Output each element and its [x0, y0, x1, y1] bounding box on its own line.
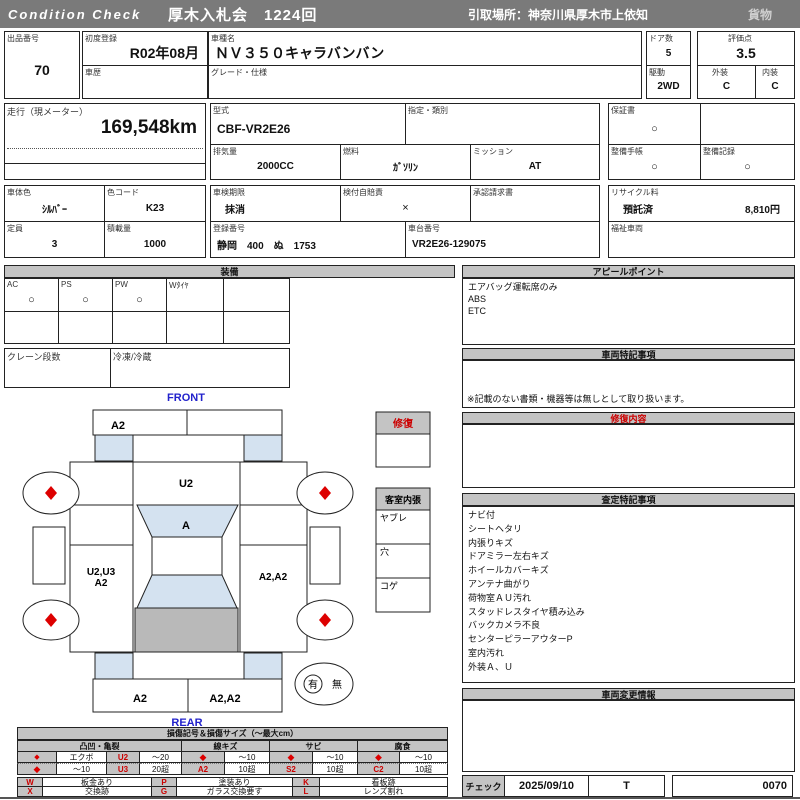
history-cell: 車歴: [82, 65, 208, 99]
diamond-icon: ◆: [270, 752, 313, 763]
repair-mini-box-title: 修復: [392, 417, 414, 430]
vehicle-damage-diagram: FRONT REAR A2 U2 A U2,U3 A2 A2,A2: [0, 388, 460, 728]
legend-cell: 10超: [313, 763, 358, 775]
legend-data-row-1: ◆ エクボ U2 〜20 ◆ 〜10 ◆ 〜10 ◆ 〜10: [17, 752, 448, 763]
equipment-pw-mark: ○: [113, 288, 166, 311]
doors-value: 5: [647, 41, 690, 65]
legend-code-a2: A2: [182, 763, 225, 775]
assessment-item: シートヘタリ: [468, 523, 789, 537]
drive-cell: 駆動 2WD: [646, 65, 691, 99]
vehicle-notes-disclaimer: ※記載のない書類・機器等は無しとして取り扱います。: [467, 393, 790, 405]
check-inspector: T: [623, 780, 630, 792]
code-row-1: W 板金あり P 塗装あり K 看板跡: [17, 777, 448, 787]
equipment-wtire-cell: Wﾀｲﾔ: [166, 278, 224, 312]
inspection-value: 抹消: [211, 195, 340, 221]
code-w: W: [17, 777, 43, 787]
cabin-interior-row-tear: ヤブレ: [380, 512, 407, 523]
code-x-desc: 交換跡: [43, 787, 152, 797]
diamond-icon: ◆: [182, 752, 225, 763]
code-k: K: [293, 777, 320, 787]
score-value: 3.5: [698, 41, 794, 65]
code-g-desc: ガラス交換要す: [177, 787, 293, 797]
interior-grade-cell: 内装 C: [755, 65, 795, 99]
legend-cell: 〜20: [140, 752, 182, 763]
equipment-empty-cell: [166, 311, 224, 344]
equipment-wtire-mark: [167, 288, 223, 311]
reefer-value: [111, 358, 289, 387]
vehicle-notes-section-header: 車両特記事項: [462, 348, 795, 360]
equipment-title: 装備: [220, 265, 238, 278]
legend-group-dent: 凸凹・亀裂: [17, 740, 182, 752]
front-label: FRONT: [167, 392, 205, 404]
damage-code-table: W 板金あり P 塗装あり K 看板跡 X 交換跡 G ガラス交換要す L レン…: [17, 777, 448, 797]
appeal-title: アピールポイント: [592, 265, 664, 278]
right-taillight-icon: [244, 653, 282, 679]
insurance-mark: ×: [341, 195, 470, 221]
equipment-extra-cell: [223, 278, 290, 312]
grade-value: [209, 75, 641, 98]
hood-damage-code: U2: [179, 478, 193, 490]
condition-check-logo: Condition Check: [8, 7, 168, 22]
maintenance-record-cell: 整備記録 ○: [700, 144, 795, 180]
front-bumper-damage-code: A2: [111, 420, 125, 432]
class-cell: 指定・類別: [405, 103, 600, 145]
appeal-item: ETC: [468, 305, 789, 317]
crane-cell: クレーン段数: [4, 348, 111, 388]
score-cell: 評価点 3.5: [697, 31, 795, 66]
pickup-location: 引取場所：神奈川県厚木市上依知: [468, 6, 748, 23]
grade-cell: グレード・仕様: [208, 65, 642, 99]
equipment-empty-cell: [223, 311, 290, 344]
code-row-2: X 交換跡 G ガラス交換要す L レンズ割れ: [17, 787, 448, 797]
right-side-damage-code: A2,A2: [259, 572, 288, 583]
mileage-divider-dotted: [7, 148, 203, 149]
approval-request-value: [471, 195, 599, 221]
transmission-cell: ミッション AT: [470, 144, 600, 180]
spare-no-label: 無: [332, 678, 342, 691]
body-color-cell: 車体色 ｼﾙﾊﾞｰ: [4, 185, 105, 222]
welfare-vehicle-cell: 福祉車両: [608, 221, 795, 258]
windshield-damage-code2: A: [182, 520, 190, 532]
assessment-item: ホイールカバーキズ: [468, 564, 789, 578]
equipment-pw-cell: PW ○: [112, 278, 167, 312]
welfare-vehicle-value: [609, 231, 794, 257]
lot-number-value: 70: [5, 41, 79, 98]
lot-number-cell: 出品番号 70: [4, 31, 80, 99]
code-x: X: [17, 787, 43, 797]
legend-code-s2: S2: [270, 763, 313, 775]
change-info-title: 車両変更情報: [601, 688, 655, 701]
equipment-empty-cell: [4, 311, 59, 344]
legend-cell: 〜10: [313, 752, 358, 763]
legend-group-scratch: 線キズ: [182, 740, 270, 752]
right-headlight-icon: [244, 435, 282, 461]
assessment-item: 室内汚れ: [468, 647, 789, 661]
code-w-desc: 板金あり: [43, 777, 152, 787]
code-p: P: [152, 777, 177, 787]
legend-code-u2: U2: [107, 752, 140, 763]
warranty-cell: 保証書 ○: [608, 103, 701, 145]
maintenance-book-mark: ○: [609, 154, 700, 179]
check-date-cell: 2025/09/10: [504, 775, 589, 797]
registration-number-value: 静岡 400 ぬ 1753: [211, 231, 405, 257]
recycle-fee-cell: リサイクル料 預託済 8,810円: [608, 185, 795, 222]
code-l-desc: レンズ割れ: [320, 787, 448, 797]
assessment-body: ナビ付 シートヘタリ 内張りキズ ドアミラー左右キズ ホイールカバーキズ アンテ…: [462, 506, 795, 683]
reefer-cell: 冷凍/冷蔵: [110, 348, 290, 388]
recycle-amount: 8,810円: [745, 201, 780, 216]
legend-code-c2: C2: [358, 763, 400, 775]
left-headlight-icon: [95, 435, 133, 461]
assessment-item: ナビ付: [468, 509, 789, 523]
spare-yes-label: 有: [308, 678, 318, 691]
cabin-interior-row-hole: 穴: [380, 546, 389, 557]
cabin-interior-box-title: 客室内張: [384, 494, 422, 505]
approval-request-cell: 承認請求書: [470, 185, 600, 222]
assessment-section-header: 査定特記事項: [462, 493, 795, 506]
rear-bumper-right-damage-code: A2,A2: [209, 693, 240, 705]
body-color-value: ｼﾙﾊﾞｰ: [5, 195, 104, 221]
equipment-empty-cell: [112, 311, 167, 344]
legend-group-row: 凸凹・亀裂 線キズ サビ 腐食: [17, 740, 448, 752]
check-label-cell: チェック: [462, 775, 505, 797]
change-info-body: [462, 700, 795, 772]
assessment-item: 内張りキズ: [468, 537, 789, 551]
rear-bumper-left-damage-code: A2: [133, 693, 147, 705]
cargo-area-shape: [135, 608, 238, 652]
check-number: 0070: [763, 780, 787, 792]
first-registration-cell: 初度登録 R02年08月: [82, 31, 208, 66]
vehicle-notes-title: 車両特記事項: [601, 348, 655, 361]
equipment-ac-mark: ○: [5, 288, 58, 311]
doors-cell: ドア数 5: [646, 31, 691, 66]
legend-cell: エクボ: [57, 752, 107, 763]
assessment-item: バックカメラ不良: [468, 619, 789, 633]
vehicle-notes-body: ※記載のない書類・機器等は無しとして取り扱います。: [462, 360, 795, 408]
legend-group-rust: サビ: [270, 740, 358, 752]
check-number-cell: 0070: [672, 775, 793, 797]
displacement-value: 2000CC: [211, 154, 340, 179]
assessment-item: アンテナ曲がり: [468, 578, 789, 592]
check-inspector-cell: T: [588, 775, 665, 797]
legend-cell: 20超: [140, 763, 182, 775]
top-header-bar: Condition Check 厚木入札会 1224回 引取場所：神奈川県厚木市…: [0, 0, 800, 28]
check-date: 2025/09/10: [519, 780, 574, 792]
left-step-strip: [33, 527, 65, 584]
left-taillight-icon: [95, 653, 133, 679]
diamond-icon: ◆: [358, 752, 400, 763]
appeal-item: エアバッグ運転席のみ: [468, 281, 789, 293]
mileage-divider-solid: [5, 163, 205, 164]
appeal-section-header: アピールポイント: [462, 265, 795, 278]
crane-value: [5, 358, 110, 387]
equipment-ac-cell: AC ○: [4, 278, 59, 312]
load-capacity-value: 1000: [105, 231, 205, 257]
transmission-value: AT: [471, 154, 599, 179]
vehicle-category: 貨物: [748, 6, 772, 23]
legend-code-u3: U3: [107, 763, 140, 775]
legend-cell: 〜10: [57, 763, 107, 775]
history-value: [83, 75, 207, 98]
capacity-value: 3: [5, 231, 104, 257]
maintenance-record-mark: ○: [701, 154, 794, 179]
assessment-title: 査定特記事項: [601, 493, 655, 506]
left-side-damage-code-2: A2: [95, 578, 108, 589]
exterior-grade-cell: 外装 C: [697, 65, 756, 99]
check-label: チェック: [465, 780, 501, 793]
code-k-desc: 看板跡: [320, 777, 448, 787]
equipment-ps-mark: ○: [59, 288, 112, 311]
recycle-status: 預託済: [623, 201, 653, 216]
load-capacity-cell: 積載量 1000: [104, 221, 206, 258]
model-code-value: CBF-VR2E26: [211, 113, 405, 144]
legend-cell: 10超: [400, 763, 448, 775]
class-value: [406, 113, 599, 144]
legend-group-corrosion: 腐食: [358, 740, 448, 752]
legend-data-row-2: ◆ 〜10 U3 20超 A2 10超 S2 10超 C2 10超: [17, 763, 448, 775]
assessment-item: スタッドレスタイヤ積み込み: [468, 606, 789, 620]
change-info-section-header: 車両変更情報: [462, 688, 795, 700]
equipment-section-header: 装備: [4, 265, 455, 278]
assessment-item: 荷物室ＡＵ汚れ: [468, 592, 789, 606]
legend-cell: 10超: [225, 763, 270, 775]
warranty-extra-cell: [700, 103, 795, 145]
inspection-cell: 車検期限 抹消: [210, 185, 341, 222]
model-name-cell: 車種名 ＮＶ３５０キャラバンバン: [208, 31, 642, 66]
damage-legend: 損傷記号＆損傷サイズ（〜最大cm） 凸凹・亀裂 線キズ サビ 腐食 ◆ エクボ …: [17, 727, 448, 775]
interior-grade-value: C: [756, 75, 794, 98]
fuel-value: ｶﾞｿﾘﾝ: [341, 154, 470, 179]
capacity-cell: 定員 3: [4, 221, 105, 258]
cabin-interior-row-burn: コゲ: [380, 580, 398, 591]
repair-section-header: 修復内容: [462, 412, 795, 424]
first-registration-value: R02年08月: [83, 41, 207, 65]
exterior-grade-value: C: [698, 75, 755, 98]
model-name-value: ＮＶ３５０キャラバンバン: [209, 41, 641, 65]
repair-title: 修復内容: [610, 412, 646, 425]
right-step-strip: [310, 527, 340, 584]
rear-glass-shape: [137, 575, 237, 608]
code-l: L: [293, 787, 320, 797]
repair-body: [462, 424, 795, 488]
equipment-empty-cell: [58, 311, 113, 344]
diamond-icon: ◆: [17, 752, 57, 763]
code-g: G: [152, 787, 177, 797]
drive-value: 2WD: [647, 75, 690, 98]
appeal-body: エアバッグ運転席のみ ABS ETC: [462, 278, 795, 345]
assessment-item: ドアミラー左右キズ: [468, 550, 789, 564]
insurance-cell: 検付自賠責 ×: [340, 185, 471, 222]
appeal-item: ABS: [468, 293, 789, 305]
fuel-cell: 燃料 ｶﾞｿﾘﾝ: [340, 144, 471, 180]
assessment-item: センターピラーアウターP: [468, 633, 789, 647]
legend-cell: 〜10: [225, 752, 270, 763]
color-code-value: K23: [105, 195, 205, 221]
auction-condition-sheet: Condition Check 厚木入札会 1224回 引取場所：神奈川県厚木市…: [0, 0, 800, 800]
warranty-mark: ○: [609, 113, 700, 144]
chassis-number-cell: 車台番号 VR2E26-129075: [405, 221, 600, 258]
equipment-ps-cell: PS ○: [58, 278, 113, 312]
auction-title: 厚木入札会 1224回: [168, 4, 468, 25]
mileage-value: 169,548km: [5, 112, 205, 143]
assessment-item: 外装Ａ、Ｕ: [468, 661, 789, 675]
mileage-cell: 走行（現メーター） 169,548km: [4, 103, 206, 180]
color-code-cell: 色コード K23: [104, 185, 206, 222]
bottom-border-line: [0, 797, 800, 799]
legend-title-bar: 損傷記号＆損傷サイズ（〜最大cm）: [17, 727, 448, 740]
code-p-desc: 塗装あり: [177, 777, 293, 787]
chassis-number-value: VR2E26-129075: [406, 231, 599, 257]
legend-cell: 〜10: [400, 752, 448, 763]
legend-title: 損傷記号＆損傷サイズ（〜最大cm）: [167, 728, 298, 739]
registration-number-cell: 登録番号 静岡 400 ぬ 1753: [210, 221, 406, 258]
diamond-icon: ◆: [17, 763, 57, 775]
maintenance-book-cell: 整備手帳 ○: [608, 144, 701, 180]
model-code-cell: 型式 CBF-VR2E26: [210, 103, 406, 145]
displacement-cell: 排気量 2000CC: [210, 144, 341, 180]
left-side-damage-code-1: U2,U3: [87, 567, 116, 578]
